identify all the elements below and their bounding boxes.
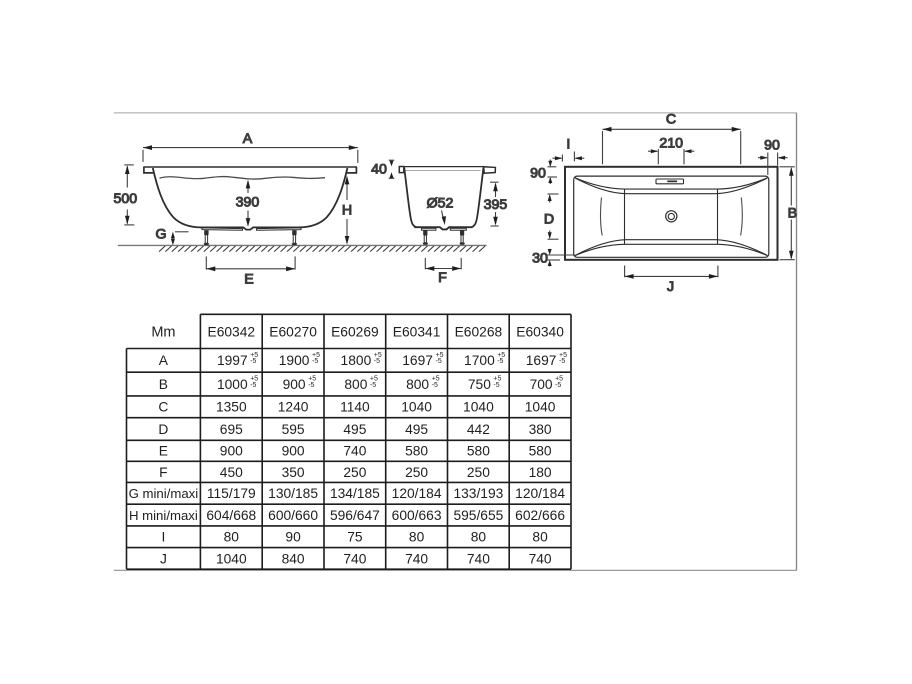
svg-text:75: 75 (347, 530, 363, 545)
svg-text:133/193: 133/193 (453, 486, 503, 501)
svg-text:800: 800 (344, 377, 367, 392)
svg-text:1140: 1140 (340, 400, 370, 415)
svg-text:H mini/maxi: H mini/maxi (129, 508, 198, 523)
svg-text:580: 580 (405, 444, 428, 459)
svg-text:495: 495 (405, 422, 428, 437)
svg-text:E60340: E60340 (516, 324, 564, 339)
svg-text:-5: -5 (370, 382, 376, 389)
svg-text:I: I (161, 530, 165, 545)
svg-text:1350: 1350 (216, 400, 247, 415)
svg-text:A: A (159, 353, 169, 368)
svg-text:1040: 1040 (216, 551, 247, 566)
svg-text:A: A (243, 131, 253, 147)
svg-text:-5: -5 (493, 382, 499, 389)
svg-text:900: 900 (220, 444, 243, 459)
svg-text:115/179: 115/179 (207, 486, 256, 501)
svg-text:80: 80 (471, 530, 487, 545)
svg-text:E60270: E60270 (269, 324, 317, 339)
svg-text:E: E (159, 444, 168, 459)
svg-text:134/185: 134/185 (330, 486, 380, 501)
svg-text:-5: -5 (374, 358, 380, 365)
svg-text:390: 390 (236, 195, 260, 211)
svg-text:-5: -5 (312, 358, 318, 365)
svg-text:B: B (788, 206, 797, 222)
svg-text:1040: 1040 (463, 400, 494, 415)
svg-text:-5: -5 (432, 382, 438, 389)
svg-text:750: 750 (468, 377, 491, 392)
svg-text:602/666: 602/666 (515, 508, 565, 523)
svg-text:C: C (666, 112, 676, 128)
svg-text:D: D (544, 212, 554, 228)
svg-text:-5: -5 (497, 358, 503, 365)
svg-text:30: 30 (532, 251, 548, 267)
svg-text:E60341: E60341 (393, 324, 441, 339)
svg-text:604/668: 604/668 (206, 508, 256, 523)
svg-text:580: 580 (529, 444, 552, 459)
svg-text:450: 450 (220, 465, 243, 480)
svg-text:E60269: E60269 (331, 324, 379, 339)
svg-text:-5: -5 (250, 382, 256, 389)
svg-text:595: 595 (282, 422, 305, 437)
svg-text:1000: 1000 (217, 377, 248, 392)
svg-text:120/184: 120/184 (515, 486, 565, 501)
svg-text:595/655: 595/655 (453, 508, 503, 523)
svg-text:Ø52: Ø52 (427, 196, 454, 212)
svg-text:-5: -5 (559, 358, 565, 365)
svg-text:1997: 1997 (217, 353, 248, 368)
svg-text:250: 250 (343, 465, 366, 480)
svg-text:E60342: E60342 (208, 324, 256, 339)
svg-text:Mm: Mm (151, 324, 175, 340)
svg-text:600/660: 600/660 (268, 508, 318, 523)
svg-text:740: 740 (343, 551, 366, 566)
svg-text:90: 90 (530, 166, 546, 182)
svg-text:740: 740 (405, 551, 428, 566)
svg-text:1040: 1040 (525, 400, 556, 415)
svg-text:I: I (566, 137, 570, 153)
svg-text:596/647: 596/647 (330, 508, 380, 523)
svg-text:80: 80 (409, 530, 425, 545)
svg-text:740: 740 (529, 551, 552, 566)
svg-text:1697: 1697 (402, 353, 433, 368)
svg-text:600/663: 600/663 (392, 508, 442, 523)
svg-text:J: J (160, 551, 167, 566)
svg-text:500: 500 (113, 191, 137, 207)
svg-text:H: H (342, 203, 352, 219)
svg-text:90: 90 (285, 530, 301, 545)
svg-text:210: 210 (659, 136, 683, 152)
svg-text:F: F (159, 465, 167, 480)
svg-text:J: J (667, 279, 674, 295)
svg-text:E60268: E60268 (455, 324, 503, 339)
svg-text:800: 800 (406, 377, 429, 392)
svg-text:1240: 1240 (278, 400, 309, 415)
svg-text:130/185: 130/185 (268, 486, 318, 501)
svg-text:-5: -5 (555, 382, 561, 389)
svg-text:-5: -5 (250, 358, 256, 365)
svg-text:442: 442 (467, 422, 490, 437)
svg-text:E: E (244, 272, 253, 288)
svg-text:G: G (155, 227, 166, 243)
svg-text:80: 80 (224, 530, 240, 545)
svg-text:-5: -5 (436, 358, 442, 365)
svg-text:C: C (158, 400, 168, 415)
svg-text:G mini/maxi: G mini/maxi (129, 486, 199, 501)
svg-text:250: 250 (405, 465, 428, 480)
svg-text:395: 395 (484, 197, 508, 213)
svg-text:380: 380 (529, 422, 552, 437)
svg-text:-5: -5 (308, 382, 314, 389)
svg-text:90: 90 (764, 138, 780, 154)
svg-text:695: 695 (220, 422, 243, 437)
svg-text:120/184: 120/184 (392, 486, 442, 501)
svg-text:840: 840 (282, 551, 305, 566)
svg-text:495: 495 (343, 422, 366, 437)
svg-text:740: 740 (467, 551, 490, 566)
svg-text:1697: 1697 (526, 353, 557, 368)
svg-text:700: 700 (530, 377, 553, 392)
svg-text:D: D (158, 422, 168, 437)
svg-text:180: 180 (529, 465, 552, 480)
svg-text:350: 350 (282, 465, 305, 480)
svg-text:250: 250 (467, 465, 490, 480)
svg-text:80: 80 (532, 530, 548, 545)
svg-text:1800: 1800 (341, 353, 372, 368)
svg-text:1040: 1040 (401, 400, 432, 415)
svg-text:900: 900 (283, 377, 306, 392)
svg-text:B: B (159, 377, 168, 392)
svg-text:F: F (438, 270, 447, 286)
svg-text:740: 740 (343, 444, 366, 459)
svg-text:900: 900 (282, 444, 305, 459)
svg-text:580: 580 (467, 444, 490, 459)
svg-text:40: 40 (371, 162, 387, 178)
svg-text:1900: 1900 (279, 353, 310, 368)
svg-text:1700: 1700 (464, 353, 495, 368)
